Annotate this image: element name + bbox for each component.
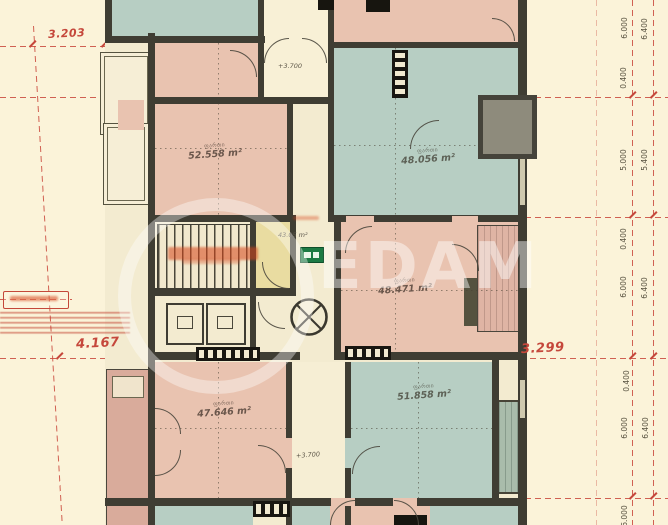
wall	[105, 498, 527, 506]
room-teal-bottomleft	[155, 506, 253, 525]
dim-label: 6.000	[619, 269, 629, 305]
dim-label: 6.400	[640, 270, 650, 306]
stamp-signature	[10, 296, 58, 301]
dim-label: 6.400	[641, 410, 651, 446]
red-dim-mid-left: 4.167	[76, 335, 120, 352]
wall	[492, 360, 499, 500]
window	[520, 380, 525, 418]
dim-label: 5.400	[640, 142, 650, 178]
dim-label: 0.400	[619, 221, 629, 257]
balcony-inner	[112, 376, 144, 398]
wall	[148, 97, 334, 104]
red-note	[293, 216, 319, 220]
room-teal-topleft	[108, 0, 258, 36]
dim-label: 6.000	[620, 498, 630, 525]
dim-label: 0.400	[619, 60, 629, 96]
floor-plan-canvas: ფართი 52.558 m² ფართი 48.056 m² ფართი 48…	[0, 0, 668, 525]
watermark-text: EDAM	[318, 230, 540, 304]
stamp-text-lines	[0, 312, 130, 335]
vent-block	[345, 346, 391, 360]
dim-label: 5.000	[619, 142, 629, 178]
vent-block	[253, 501, 290, 517]
elevation-mark: +3.700	[278, 62, 302, 70]
wall	[287, 104, 293, 222]
watermark-logo-circle	[118, 198, 314, 394]
room-teal-bottomright	[430, 506, 518, 525]
shaft-box	[478, 95, 537, 159]
corridor-bottom	[292, 362, 345, 498]
door-gap	[345, 438, 351, 468]
room-teal-bottomcenter	[290, 506, 330, 525]
balcony	[103, 123, 149, 205]
dim-label: 6.000	[620, 10, 630, 46]
elevation-mark: +3.700	[296, 450, 321, 460]
dim-label: 6.400	[640, 11, 650, 47]
balcony-door-zone	[118, 100, 144, 130]
grid-line	[596, 0, 597, 525]
wall	[328, 0, 334, 222]
vent-block	[392, 50, 408, 98]
grid-line	[33, 26, 63, 525]
red-dim-top-left: 3.203	[48, 26, 86, 41]
red-dim-mid-right: 3.299	[521, 340, 565, 357]
door-gap	[452, 216, 478, 222]
dim-label: 6.000	[620, 410, 630, 446]
door-gap	[300, 352, 336, 360]
grid-line	[632, 0, 633, 525]
dim-label: 0.400	[622, 363, 632, 399]
grid-line	[653, 0, 654, 525]
door-gap	[346, 216, 374, 222]
wall	[334, 42, 518, 48]
dim-line	[0, 46, 108, 47]
wall-stub	[366, 0, 390, 12]
axis-line	[351, 428, 492, 429]
axis-line	[218, 43, 219, 218]
wall-stub	[318, 0, 334, 10]
room-pink-topright	[334, 0, 518, 42]
axis-line	[418, 362, 419, 498]
wall	[105, 36, 265, 43]
wall	[258, 0, 264, 104]
door-gap	[286, 438, 292, 468]
